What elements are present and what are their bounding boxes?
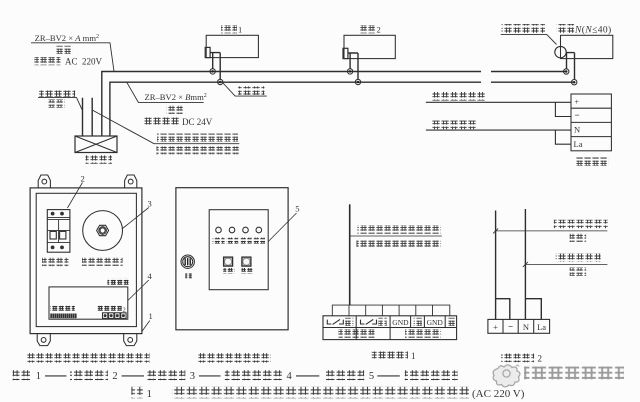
svg-text:1: 1 [36,371,41,382]
svg-text:−: − [575,110,580,120]
svg-text:3: 3 [190,371,195,382]
svg-text:AC 220V: AC 220V [65,57,103,67]
svg-text:ZR–BV2 × Bmm2: ZR–BV2 × Bmm2 [145,92,207,102]
svg-text:(AC 220 V): (AC 220 V) [472,388,525,400]
svg-text:DC 24V: DC 24V [182,117,213,127]
svg-text:GND: GND [392,318,409,327]
svg-text:−: − [508,322,513,332]
svg-text:ZR–BV2 × A mm2: ZR–BV2 × A mm2 [35,33,99,43]
svg-text:1: 1 [238,24,242,34]
svg-text:N(N≤40): N(N≤40) [574,24,612,35]
svg-text:4: 4 [287,371,293,382]
svg-text:La: La [537,322,546,332]
svg-text:2: 2 [377,24,381,34]
svg-text:N: N [523,322,529,332]
svg-text:2: 2 [538,353,543,363]
svg-text:2: 2 [112,371,117,382]
svg-text:3: 3 [148,199,152,209]
svg-text:+: + [493,322,498,332]
svg-text:4: 4 [148,271,153,281]
svg-text:GND: GND [427,318,444,327]
svg-text:5: 5 [295,204,299,214]
svg-text:+: + [575,97,580,106]
svg-text:1: 1 [149,311,153,321]
svg-text:1: 1 [411,351,416,361]
svg-text:N: N [574,125,580,135]
svg-text:La: La [574,139,583,149]
svg-text:5: 5 [369,371,374,382]
svg-text:2: 2 [81,174,85,184]
svg-text:1: 1 [147,388,153,400]
